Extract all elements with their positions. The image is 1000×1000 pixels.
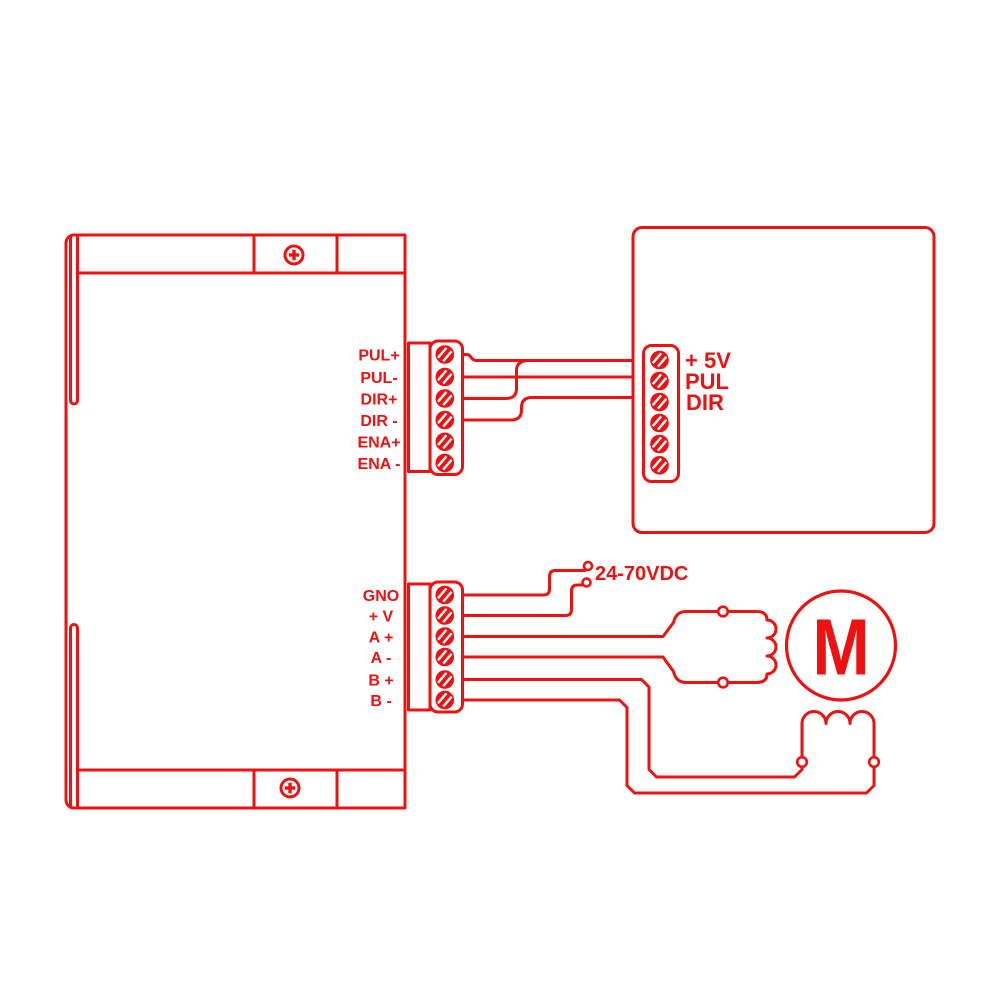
phase-a-terminal-bottom [718,678,728,688]
wire-phase-a [462,612,776,683]
screw-terminal-icon [436,345,455,364]
driver-outline [66,235,405,808]
power-supply-label: 24-70VDC [595,563,688,585]
screw-terminal-icon [436,691,455,710]
screw-terminal-icon [436,411,455,430]
driver-left-slot-lower [71,625,78,808]
terminal-label-a-plus: A + [369,629,394,646]
signal-terminal-block: PUL+ PUL- DIR+ DIR - ENA+ ENA - [357,341,462,475]
terminal-label-gnd: GNO [363,588,399,605]
terminal-label-a-minus: A - [371,650,392,667]
signal-wires [462,355,633,421]
terminal-label-dir-minus: DIR - [360,413,397,430]
controller-label-dir: DIR [686,390,724,415]
screw-terminal-icon [436,454,455,473]
driver-module: PUL+ PUL- DIR+ DIR - ENA+ ENA - GNO + V … [66,235,463,808]
terminal-housing [409,343,431,472]
terminal-housing [409,584,431,710]
phase-b-coil [802,712,874,758]
screw-terminal-icon [650,456,669,475]
screw-terminal-icon [650,414,669,433]
motor: M [787,591,896,700]
motor-label: M [812,602,869,692]
terminal-label-pul-minus: PUL- [360,370,397,387]
screw-terminal-icon [436,389,455,408]
screw-terminal-icon [436,627,455,646]
screw-terminal-icon [650,393,669,412]
driver-left-slot-upper [71,236,78,404]
controller-box: + 5V PUL DIR [633,228,934,533]
wiring-diagram-page: PUL+ PUL- DIR+ DIR - ENA+ ENA - GNO + V … [0,0,1000,1000]
phase-a-terminal-top [718,607,728,617]
wire-dirplus-5v [462,361,529,399]
phase-b-terminal-left [797,757,807,767]
screw-terminal-icon [650,435,669,454]
terminal-label-v-plus: + V [369,608,394,625]
wire-phase-b-plus [462,680,802,778]
terminal-label-b-plus: B + [368,672,393,689]
wire-gnd-supply [462,571,586,596]
screw-terminal-icon [436,368,455,387]
phase-b-terminal-right [869,757,879,767]
supply-terminal-top [584,562,592,570]
terminal-label-ena-minus: ENA - [358,456,401,473]
mounting-screw-bottom-icon [281,779,299,797]
wire-phase-b-minus [462,700,874,793]
terminal-label-b-minus: B - [370,693,391,710]
terminal-label-ena-plus: ENA+ [357,435,400,452]
power-supply: 24-70VDC [462,562,688,616]
screw-terminal-icon [436,586,455,605]
wire-pulplus-5v [462,355,633,361]
screw-terminal-icon [436,606,455,625]
phase-a-winding [462,607,776,688]
mounting-screw-top-icon [285,246,303,264]
phase-b-winding [462,680,879,794]
wire-dirminus-dir [462,398,633,421]
screw-terminal-icon [650,351,669,370]
terminal-label-pul-plus: PUL+ [358,347,399,364]
screw-terminal-icon [650,372,669,391]
screw-terminal-icon [436,670,455,689]
screw-terminal-icon [436,433,455,452]
screw-terminal-icon [436,648,455,667]
wiring-diagram: PUL+ PUL- DIR+ DIR - ENA+ ENA - GNO + V … [0,0,1000,1000]
terminal-label-dir-plus: DIR+ [361,391,398,408]
power-terminal-block: GNO + V A + A - B + B - [363,582,463,712]
wire-v-supply [462,585,583,616]
supply-terminal-bottom [583,579,591,587]
